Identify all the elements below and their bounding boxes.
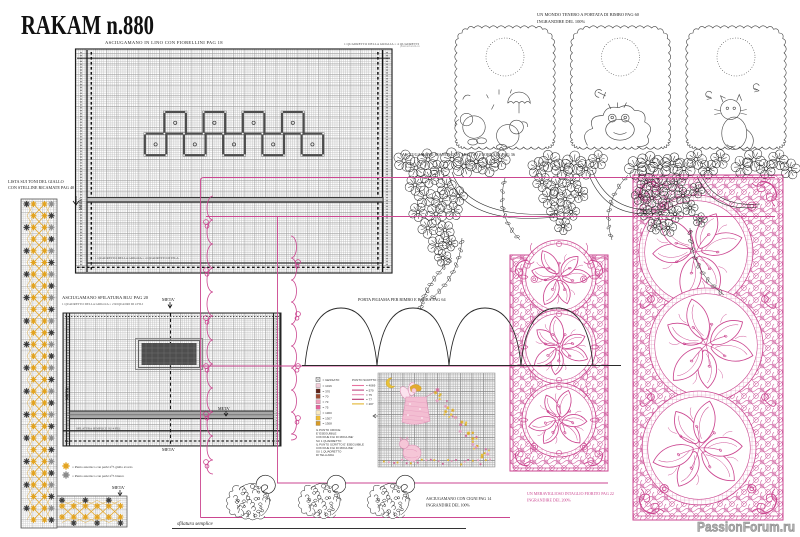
svg-text:= 1300: = 1300: [323, 411, 333, 415]
svg-text:ASCIUGAMANO CON CIGNI PAG 14: ASCIUGAMANO CON CIGNI PAG 14: [426, 496, 491, 501]
svg-text:= 73: = 73: [323, 400, 329, 404]
svg-text:= 75: = 75: [323, 406, 329, 410]
svg-text:SFILATURA SEMPLICE SU 4 FILI: SFILATURA SEMPLICE SU 4 FILI: [76, 427, 120, 431]
svg-text:ASCIUGAMANO SFILATURA BLU PAG: ASCIUGAMANO SFILATURA BLU PAG 20: [62, 295, 149, 300]
svg-text:= 1016: = 1016: [323, 384, 333, 388]
svg-text:= 4069: = 4069: [366, 384, 376, 388]
svg-text:= 570: = 570: [366, 388, 374, 392]
svg-text:META': META': [112, 485, 125, 490]
svg-text:META': META': [218, 406, 230, 411]
svg-text:META': META': [162, 447, 175, 452]
svg-text:= 1307: = 1307: [323, 416, 333, 420]
svg-text:= GESSATO: = GESSATO: [323, 378, 340, 382]
svg-text:ASCIUGAMANO IN LINO CON FIOREL: ASCIUGAMANO IN LINO CON FIORELLINI PAG 1…: [105, 40, 223, 45]
svg-text:= 70: = 70: [323, 395, 329, 399]
svg-text:INGRANDIRE DEL 100%: INGRANDIRE DEL 100%: [426, 503, 471, 508]
svg-text:= 207: = 207: [366, 402, 374, 406]
svg-text:INGRANDIRE DEL 100%: INGRANDIRE DEL 100%: [537, 19, 585, 24]
svg-text:sfilatura semplice: sfilatura semplice: [177, 522, 213, 527]
svg-text:META': META': [162, 297, 175, 302]
svg-text:= Punto asterisco con perlé n°: = Punto asterisco con perlé n°5 bianco: [72, 474, 125, 478]
svg-text:DI TELA AIDA: DI TELA AIDA: [316, 453, 334, 457]
svg-text:PassionForum.ru: PassionForum.ru: [697, 520, 795, 535]
svg-text:= 77: = 77: [366, 398, 372, 402]
svg-text:= 1308: = 1308: [323, 422, 333, 426]
svg-text:= 370: = 370: [323, 389, 331, 393]
svg-text:= 75: = 75: [366, 393, 372, 397]
svg-text:META': META': [78, 198, 83, 210]
svg-text:UN MONDO TENERO A PORTATA DI B: UN MONDO TENERO A PORTATA DI BIMBO PAG 6…: [537, 12, 640, 17]
svg-text:META': META': [65, 387, 70, 400]
svg-text:INGRANDIRE DEL 200%: INGRANDIRE DEL 200%: [527, 498, 572, 503]
svg-text:1 QUADRETTO DELLA GRIGLIA = 2: 1 QUADRETTO DELLA GRIGLIA = 2 RIQUADRI D…: [62, 302, 143, 306]
svg-text:UN MERAVIGLIOSO INTAGLIO FIORI: UN MERAVIGLIOSO INTAGLIO FIORITO PAG 22: [527, 491, 614, 496]
svg-text:= Punto asterisco con perlé n°: = Punto asterisco con perlé n°5 giallo a…: [72, 465, 133, 469]
svg-text:RAKAM n.880: RAKAM n.880: [21, 10, 154, 40]
svg-text:passionforum.ru: passionforum.ru: [400, 44, 420, 48]
svg-text:PORTA PIGIAMA PER BIMBO E BIMB: PORTA PIGIAMA PER BIMBO E BIMBA PAG 64: [358, 297, 446, 302]
svg-text:LISTA SUI TONI DEL GIALLO: LISTA SUI TONI DEL GIALLO: [8, 179, 64, 184]
svg-text:CON STELLINE RICAMATE PAG 40: CON STELLINE RICAMATE PAG 40: [8, 185, 74, 190]
svg-text:1 QUADRETTO DELLA GRIGLIA = 4: 1 QUADRETTO DELLA GRIGLIA = 4 QUADRETTI …: [95, 256, 179, 260]
